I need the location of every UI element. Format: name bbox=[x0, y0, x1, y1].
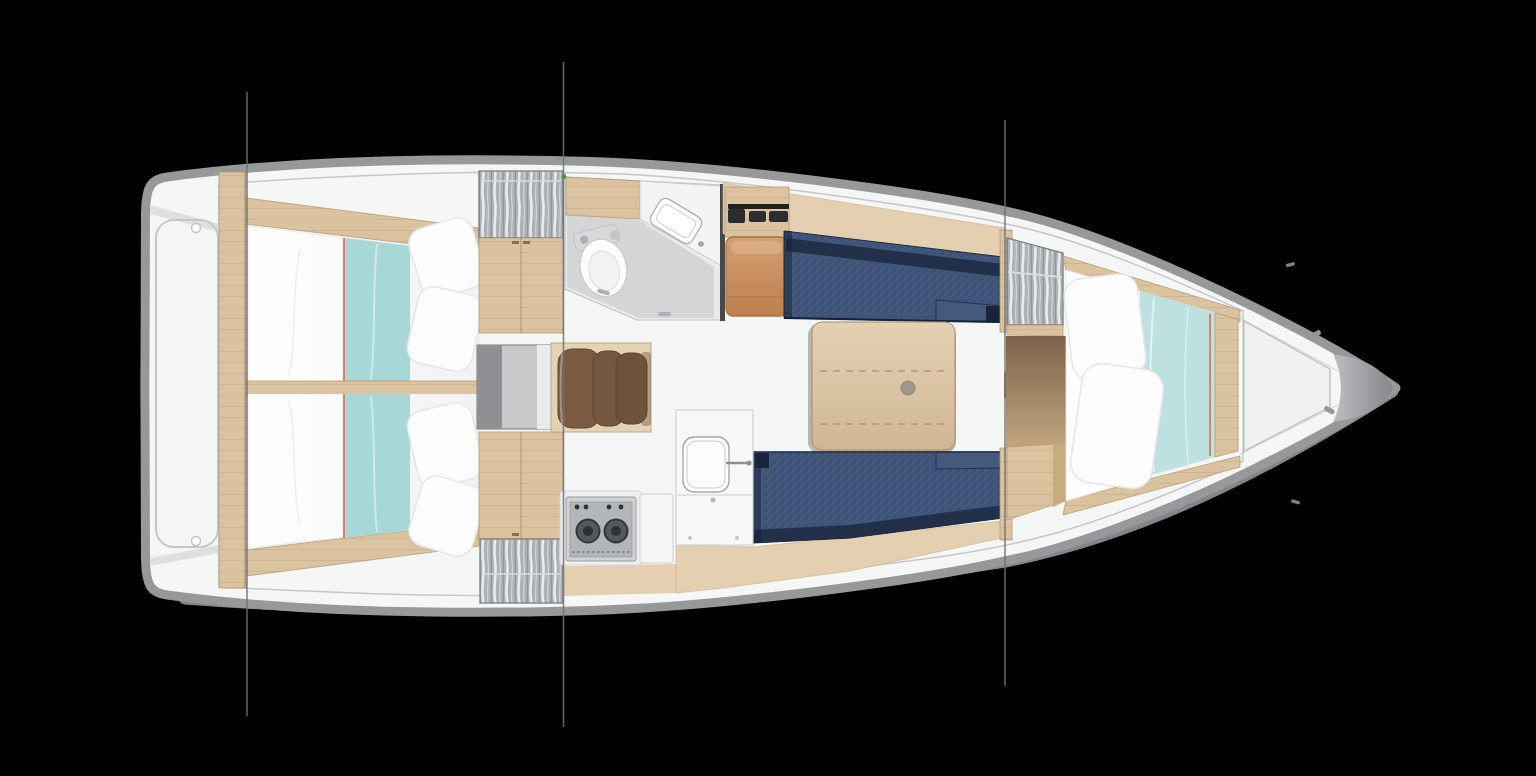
step bbox=[616, 353, 647, 424]
door-handle bbox=[658, 312, 671, 316]
settee-armrest bbox=[936, 452, 1003, 469]
engine-box-dark-panel bbox=[477, 345, 502, 429]
counter-latch bbox=[688, 536, 692, 540]
transom-bulkhead-edge bbox=[244, 172, 247, 588]
companionway-steps bbox=[551, 343, 651, 432]
stanchion-mark bbox=[1291, 499, 1301, 505]
stove-knob bbox=[575, 505, 580, 510]
instrument-box bbox=[749, 211, 766, 222]
hinge-ring bbox=[192, 537, 201, 546]
head-cabinet bbox=[566, 177, 640, 219]
berth-divider bbox=[246, 381, 479, 394]
vanity-faucet bbox=[698, 241, 704, 247]
instrument-box bbox=[769, 211, 788, 222]
stove-knob bbox=[619, 505, 624, 510]
cabinet-handle bbox=[512, 533, 519, 536]
settee-pocket bbox=[755, 453, 769, 468]
hinge-ring bbox=[192, 224, 201, 233]
nav-seat-highlight bbox=[731, 241, 782, 254]
burner-center bbox=[611, 526, 621, 536]
cabinet-handle bbox=[523, 241, 530, 244]
teal-runner bbox=[345, 394, 410, 538]
floorplan-image bbox=[0, 0, 1536, 776]
instrument-box bbox=[728, 209, 745, 223]
yacht-floorplan-svg bbox=[0, 0, 1536, 776]
galley-sink-unit bbox=[676, 410, 753, 545]
engine-box bbox=[477, 345, 563, 429]
bow-fitting bbox=[1334, 354, 1393, 422]
settee-end-cap bbox=[784, 231, 792, 318]
stanchion-mark bbox=[1286, 262, 1296, 268]
table-pedestal-knob bbox=[901, 381, 915, 395]
center-column bbox=[477, 171, 563, 603]
shelf-band-bottom-left bbox=[563, 564, 676, 596]
head-bathroom bbox=[565, 177, 725, 321]
teal-runner bbox=[345, 238, 410, 382]
pillow bbox=[1068, 361, 1166, 491]
counter-latch bbox=[735, 536, 739, 540]
stove bbox=[560, 491, 642, 565]
stove-knob bbox=[584, 505, 589, 510]
galley-sink bbox=[683, 437, 729, 492]
footboard bbox=[1215, 313, 1238, 457]
fridge-door bbox=[640, 494, 673, 563]
counter-latch bbox=[711, 498, 716, 503]
hanging-locker-fwd bbox=[1007, 238, 1063, 325]
doorway-shadow bbox=[1006, 336, 1066, 448]
saloon-table bbox=[808, 322, 956, 453]
settee-pocket bbox=[986, 306, 1000, 321]
cabinet-handle bbox=[512, 241, 519, 244]
table-top bbox=[812, 322, 955, 450]
burner-center bbox=[583, 526, 593, 536]
stove-knob bbox=[607, 505, 612, 510]
galley-faucet-base bbox=[747, 461, 752, 466]
aft-cabins bbox=[219, 172, 489, 588]
locker-shelf bbox=[1007, 325, 1063, 336]
mast-marker-dot bbox=[562, 174, 567, 179]
forward-bulkhead bbox=[1000, 230, 1068, 540]
transom-bulkhead bbox=[219, 172, 246, 588]
instrument-strip bbox=[728, 204, 789, 209]
hanging-locker bbox=[480, 539, 563, 603]
nav-station bbox=[725, 187, 789, 316]
